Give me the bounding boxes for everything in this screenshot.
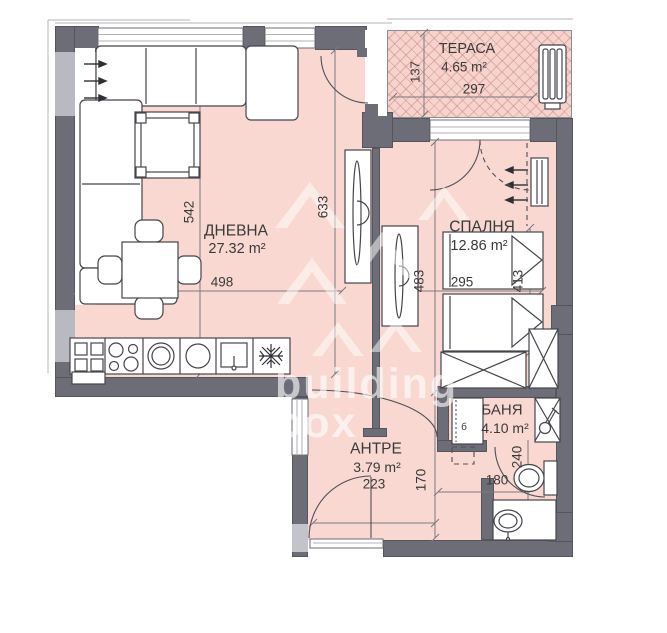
door-arc-dashed — [480, 140, 530, 190]
door-arc — [321, 56, 368, 103]
area-label-hall: 3.79 m² — [353, 460, 400, 474]
floor-plan: ДНЕВНА 27.32 m² 498 542 633 ТЕРАСА 4.65 … — [0, 0, 667, 633]
room-label-bedroom: СПАЛНЯ — [449, 219, 515, 235]
dim-terrace-width: 297 — [463, 82, 486, 96]
dim-living-height: 542 — [182, 201, 196, 224]
dim-terrace-depth: 137 — [409, 61, 422, 83]
room-label-living: ДНЕВНА — [204, 223, 268, 239]
watermark-text-line2: box — [275, 402, 357, 445]
area-label-living: 27.32 m² — [208, 242, 265, 257]
area-label-bath: 4.10 m² — [481, 421, 528, 435]
dim-living-width: 498 — [211, 275, 234, 289]
dim-bath-width: 180 — [486, 473, 509, 487]
coffee-table — [135, 112, 200, 178]
area-label-bedroom: 12.86 m² — [450, 239, 507, 254]
radiator-icon — [531, 158, 548, 206]
sink-bowl-icon — [186, 344, 210, 368]
furniture — [70, 45, 566, 541]
dim-hall-depth: 170 — [414, 469, 428, 492]
room-label-terrace: ТЕРАСА — [439, 42, 495, 57]
room-label-bath: БАНЯ — [481, 403, 522, 418]
shower-icon — [535, 398, 560, 442]
door-arc — [309, 476, 371, 538]
area-label-terrace: 4.65 m² — [441, 60, 487, 74]
oven-icon — [75, 343, 87, 355]
dim-bath-depth: 240 — [510, 446, 524, 469]
dim-right-wing-height: 483 — [412, 270, 426, 293]
wall-jamb — [357, 48, 367, 57]
room-label-hall: АНТРЕ — [350, 441, 402, 457]
bed — [443, 294, 543, 351]
terrace-doorway — [365, 30, 387, 116]
door-arc — [430, 140, 480, 190]
cooktop-icon — [109, 343, 123, 357]
dim-living-full-height: 633 — [316, 196, 330, 219]
dim-hall-width: 223 — [363, 477, 386, 491]
kitchen-counter — [70, 338, 290, 384]
dim-bedroom-width: 295 — [451, 275, 474, 289]
tag-label-bath: б — [461, 423, 467, 433]
watermark-logo — [275, 182, 470, 356]
ac-unit-icon — [539, 45, 566, 109]
bath-sink-icon — [493, 500, 556, 541]
plan-graphics — [0, 0, 667, 633]
wall-jamb — [365, 104, 378, 116]
dim-bedroom-length: 413 — [511, 270, 525, 293]
